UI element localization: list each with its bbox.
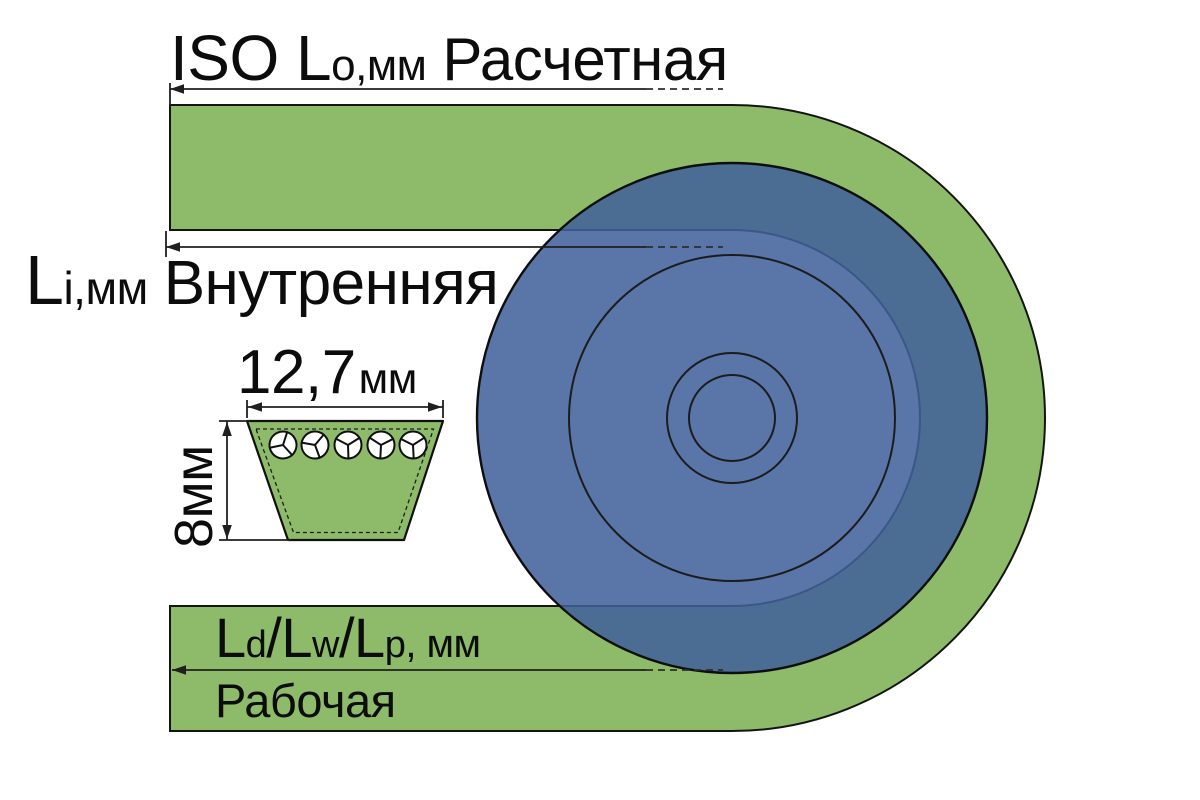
- working-length-title: Рабочая: [215, 674, 396, 727]
- dim-width-arrow-right-icon: [428, 402, 442, 412]
- dim-section-width: 12,7мм: [237, 338, 443, 418]
- outer-length-label: ISO Lo,ммРасчетная: [170, 22, 728, 94]
- belt-cross-section: [247, 421, 443, 540]
- pulley-disc: [477, 163, 987, 673]
- section-width-label: 12,7мм: [237, 338, 417, 407]
- belt-cord-icon: [367, 431, 395, 459]
- section-height-label: 8мм: [164, 445, 224, 548]
- belt-diagram: ISO Lo,ммРасчетная Li,ммВнутренняя: [0, 0, 1200, 800]
- belt-cord-icon: [399, 431, 427, 459]
- dim-height-arrow-up-icon: [222, 422, 232, 436]
- dim-outer-length: ISO Lo,ммРасчетная: [170, 22, 728, 106]
- inner-length-label: Li,ммВнутренняя: [25, 241, 498, 319]
- belt-cord-icon: [334, 431, 362, 459]
- belt-diagram-canvas: ISO Lo,ммРасчетная Li,ммВнутренняя: [0, 0, 1200, 800]
